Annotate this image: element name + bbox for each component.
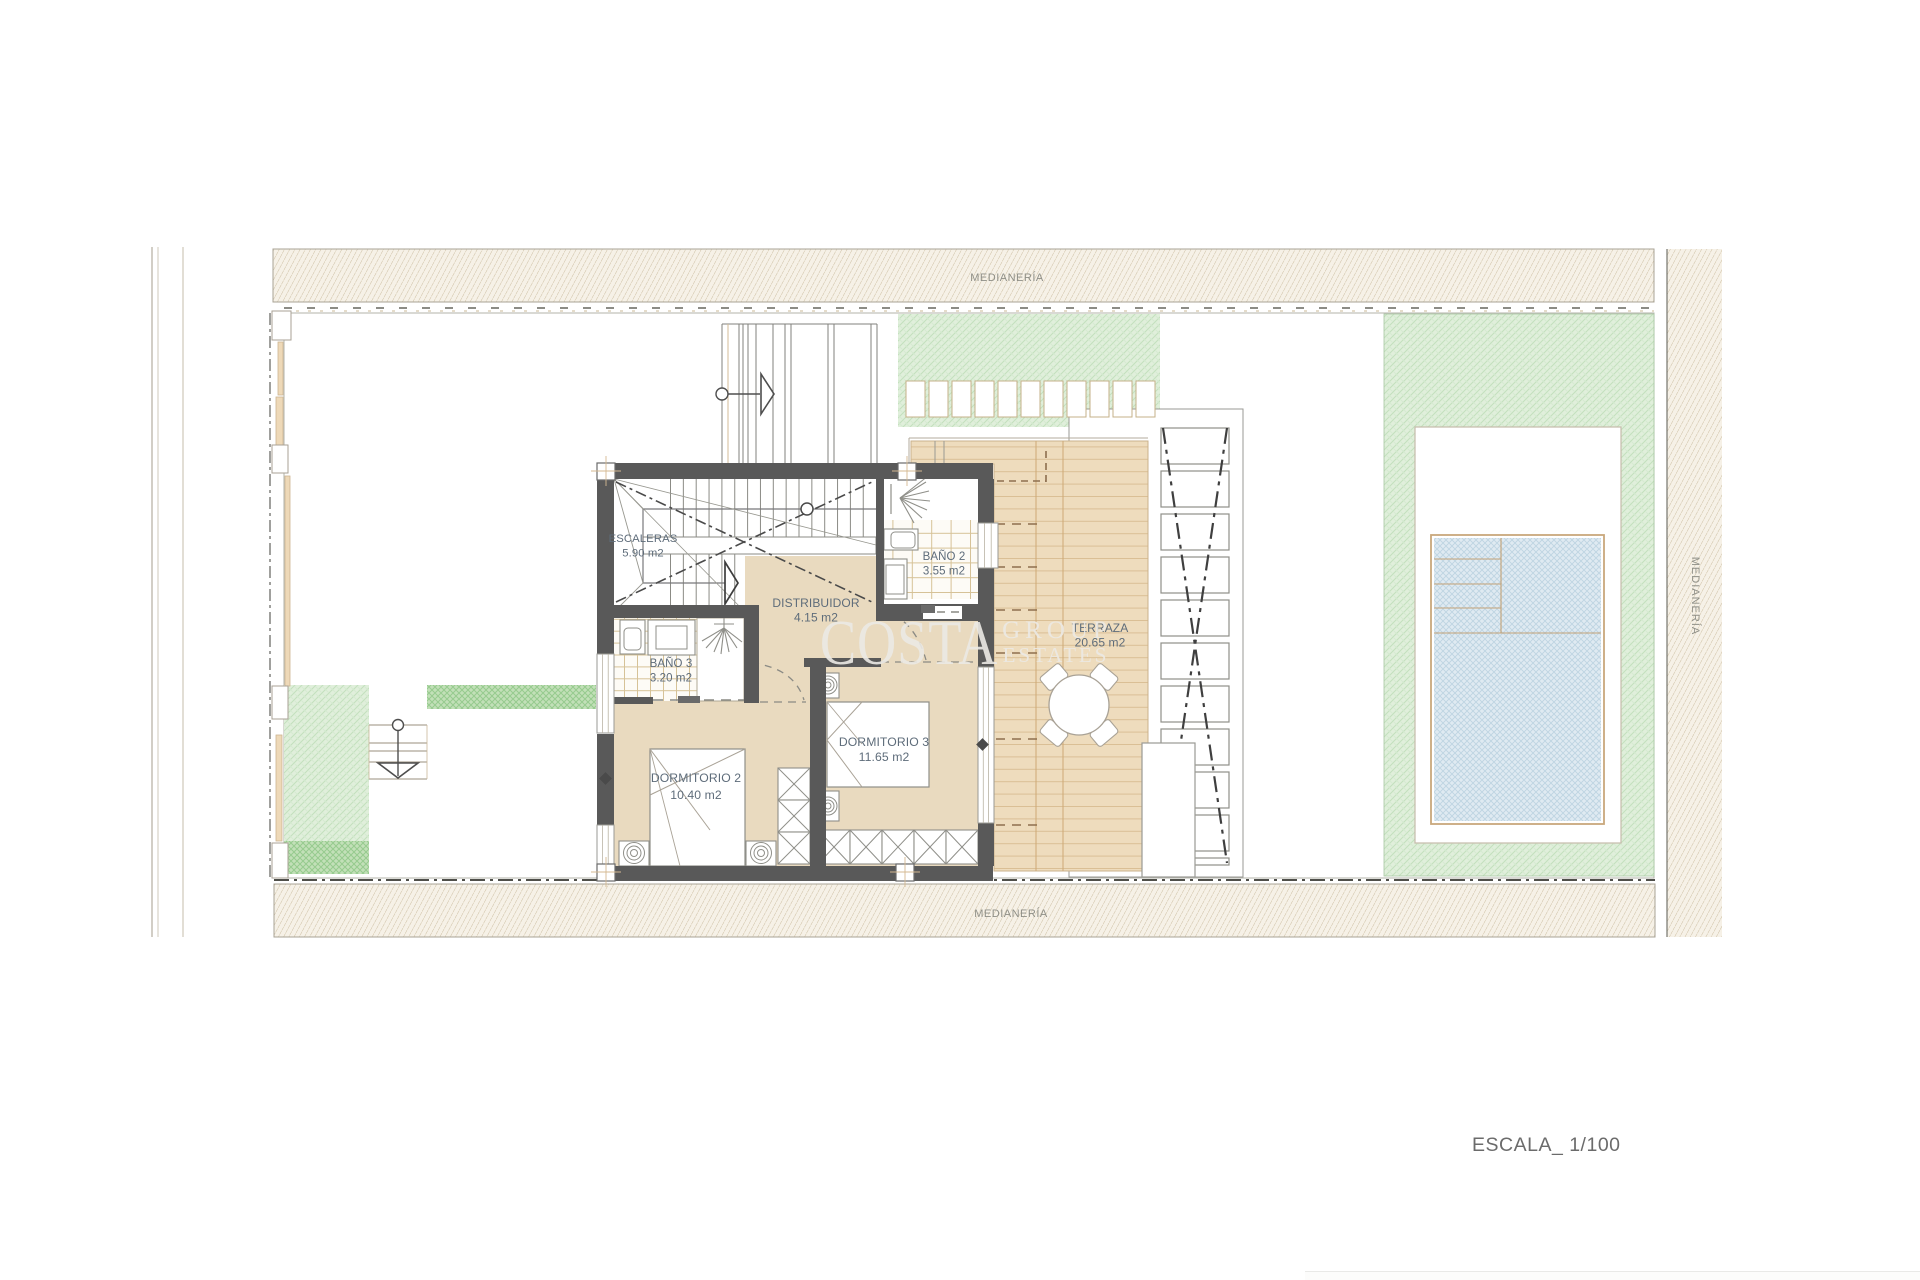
svg-text:3.20 m2: 3.20 m2 xyxy=(650,673,692,685)
svg-text:ESCALERAS: ESCALERAS xyxy=(609,533,678,545)
svg-text:3.55 m2: 3.55 m2 xyxy=(923,566,965,578)
svg-text:10.40 m2: 10.40 m2 xyxy=(670,788,722,802)
svg-text:MEDIANERÍA: MEDIANERÍA xyxy=(974,907,1048,920)
svg-text:MEDIANERÍA: MEDIANERÍA xyxy=(1689,557,1702,635)
svg-text:GROUP: GROUP xyxy=(1002,617,1112,644)
svg-text:COSTA: COSTA xyxy=(820,607,998,678)
svg-text:ESTATES: ESTATES xyxy=(1003,643,1110,667)
svg-text:11.65 m2: 11.65 m2 xyxy=(859,750,910,764)
svg-text:ESCALA_ 1/100: ESCALA_ 1/100 xyxy=(1472,1134,1621,1156)
svg-text:BAÑO 3: BAÑO 3 xyxy=(650,657,693,670)
svg-text:BAÑO 2: BAÑO 2 xyxy=(923,550,966,563)
svg-text:DORMITORIO 3: DORMITORIO 3 xyxy=(839,735,929,749)
svg-text:5.90 m2: 5.90 m2 xyxy=(622,548,664,560)
svg-text:MEDIANERÍA: MEDIANERÍA xyxy=(970,271,1044,284)
svg-text:DORMITORIO 2: DORMITORIO 2 xyxy=(651,771,741,785)
